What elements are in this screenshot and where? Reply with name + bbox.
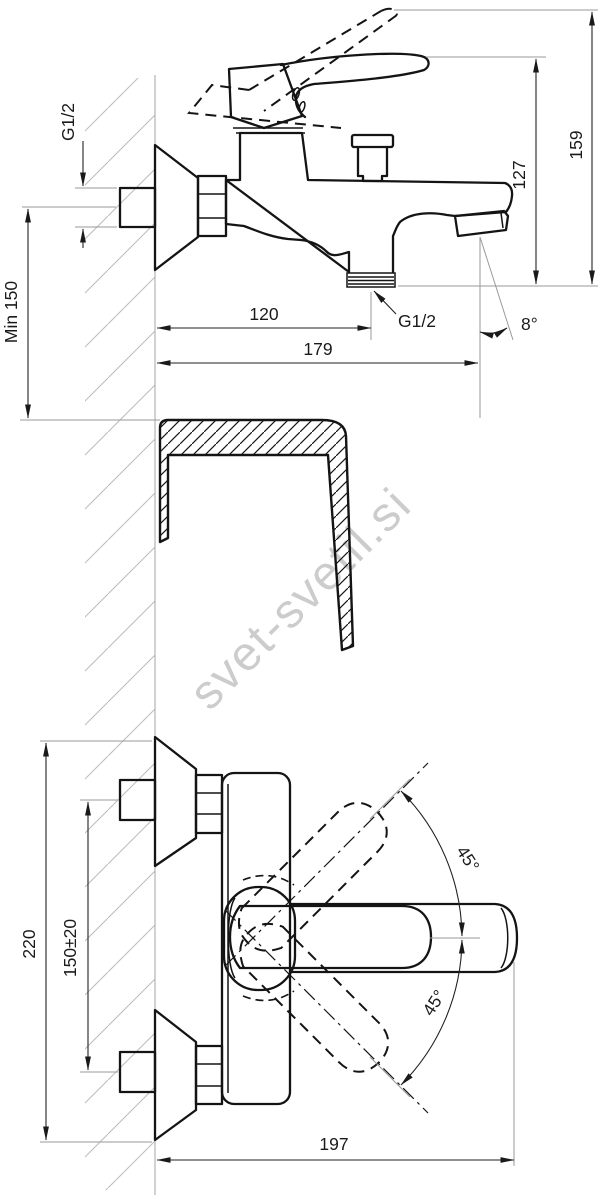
dim-label-220: 220: [19, 929, 39, 958]
mounting-wall: [85, 75, 155, 1195]
dim-label-150-20: 150±20: [60, 919, 80, 978]
faucet-technical-drawing: svet-svetil.si: [0, 0, 600, 1200]
dim-label-159: 159: [566, 130, 586, 159]
dim-label-thread-top: G1/2: [58, 103, 78, 141]
wall-hatching: [85, 78, 155, 1190]
dim-label-spout-angle: 8°: [521, 314, 538, 334]
dim-label-197: 197: [319, 1134, 348, 1154]
dim-label-min-wall: Min 150: [1, 281, 21, 344]
technical-drawing-page: svet-svetil.si: [0, 0, 600, 1200]
dim-label-179: 179: [303, 339, 332, 359]
dim-label-120: 120: [249, 304, 278, 324]
dim-label-127: 127: [509, 160, 529, 189]
dim-label-thread-bottom: G1/2: [398, 311, 436, 331]
